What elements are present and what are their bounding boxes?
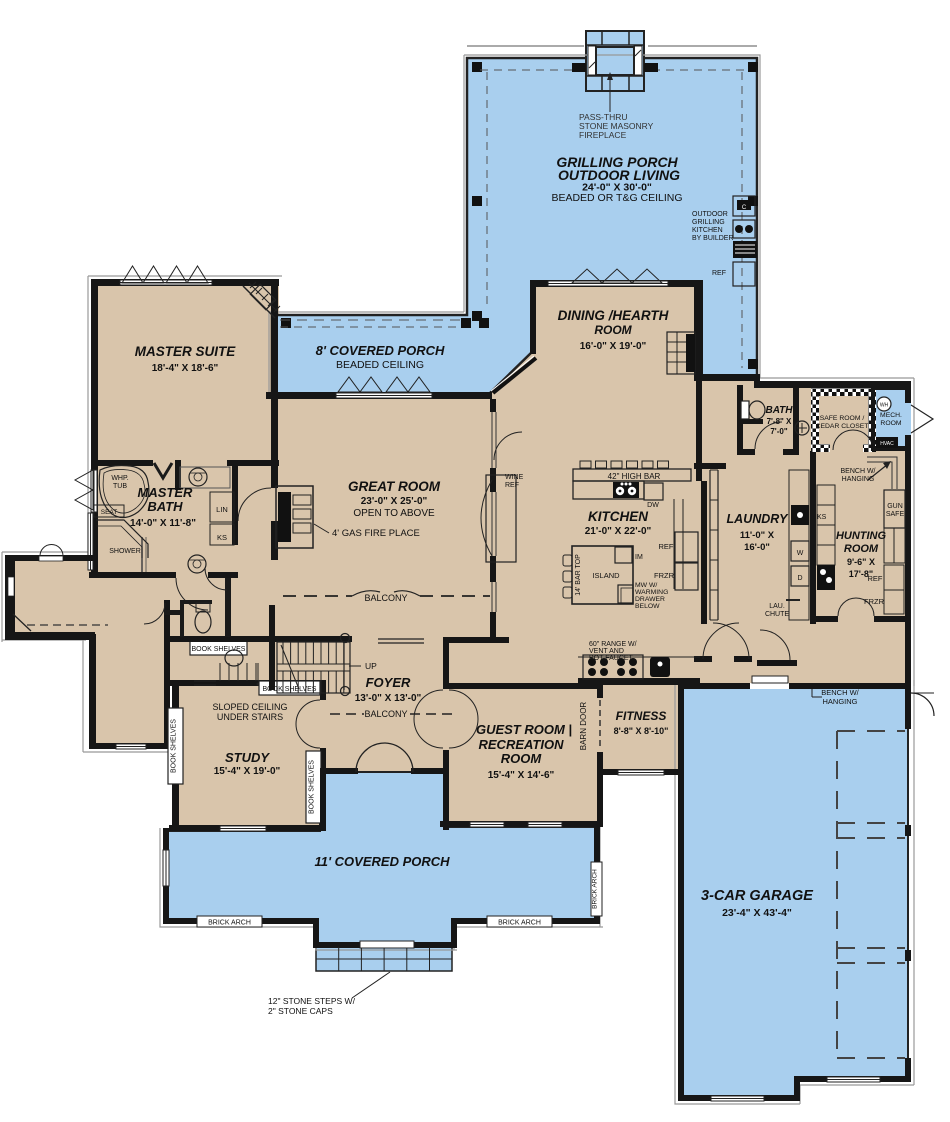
svg-text:STUDY: STUDY (225, 750, 270, 765)
svg-text:KS: KS (817, 514, 827, 521)
svg-text:WH: WH (880, 403, 889, 409)
svg-text:BEADED CEILING: BEADED CEILING (336, 359, 424, 371)
svg-text:ISLAND: ISLAND (592, 571, 620, 580)
svg-text:SEAT: SEAT (101, 509, 118, 516)
svg-text:BELOW: BELOW (635, 603, 660, 610)
svg-text:7'-8" X: 7'-8" X (767, 417, 792, 426)
svg-text:GUEST ROOM |: GUEST ROOM | (476, 722, 572, 737)
svg-text:BOOK SHELVES: BOOK SHELVES (192, 646, 246, 653)
svg-text:DW: DW (647, 502, 659, 509)
svg-text:TUB: TUB (113, 483, 127, 490)
svg-text:BOOK SHELVES: BOOK SHELVES (309, 760, 316, 814)
svg-text:LAU.: LAU. (769, 603, 785, 610)
svg-text:FRZR: FRZR (654, 571, 675, 580)
svg-text:12" STONE STEPS W/: 12" STONE STEPS W/ (268, 996, 356, 1006)
svg-text:8' COVERED PORCH: 8' COVERED PORCH (316, 343, 445, 358)
svg-text:FIREPLACE: FIREPLACE (579, 130, 627, 140)
svg-text:BARN DOOR: BARN DOOR (579, 702, 588, 751)
svg-text:3-CAR GARAGE: 3-CAR GARAGE (701, 888, 814, 904)
svg-text:HUNTING: HUNTING (836, 530, 887, 542)
svg-text:15'-4" X 19'-0": 15'-4" X 19'-0" (214, 766, 281, 777)
svg-text:16'-0": 16'-0" (744, 542, 770, 553)
svg-text:RECREATION: RECREATION (479, 737, 565, 752)
svg-text:VENT AND: VENT AND (589, 648, 624, 655)
svg-text:CEDAR CLOSET: CEDAR CLOSET (816, 423, 869, 430)
svg-text:UNDER STAIRS: UNDER STAIRS (217, 712, 283, 722)
svg-text:KS: KS (217, 533, 227, 542)
svg-text:HANGING: HANGING (842, 476, 875, 483)
svg-text:FRZR: FRZR (864, 597, 885, 606)
svg-text:WHP.: WHP. (111, 475, 128, 482)
svg-text:13'-0" X 13'-0": 13'-0" X 13'-0" (355, 693, 422, 704)
svg-text:DRAWER: DRAWER (635, 596, 665, 603)
svg-text:MECH.: MECH. (880, 412, 902, 419)
svg-text:GRILLING: GRILLING (692, 219, 725, 226)
svg-text:60" RANGE W/: 60" RANGE W/ (589, 641, 637, 648)
svg-text:7'-0": 7'-0" (770, 427, 787, 436)
svg-text:BENCH W/: BENCH W/ (841, 468, 876, 475)
svg-text:BALCONY: BALCONY (364, 709, 407, 719)
svg-text:ROOM: ROOM (594, 323, 632, 337)
svg-text:BATH: BATH (147, 499, 183, 514)
svg-text:14'-0" X 11'-8": 14'-0" X 11'-8" (130, 518, 196, 529)
svg-text:23'-0" X 25'-0": 23'-0" X 25'-0" (361, 496, 428, 507)
svg-text:23'-4" X 43'-4": 23'-4" X 43'-4" (722, 907, 792, 919)
svg-text:REF: REF (868, 574, 883, 583)
svg-text:2" STONE CAPS: 2" STONE CAPS (268, 1006, 333, 1016)
svg-text:SAFE ROOM /: SAFE ROOM / (820, 415, 865, 422)
svg-text:SLOPED CEILING: SLOPED CEILING (212, 702, 287, 712)
svg-text:REF: REF (505, 482, 519, 489)
svg-text:MASTER: MASTER (138, 485, 194, 500)
svg-text:9'-6" X: 9'-6" X (847, 557, 875, 567)
svg-text:D: D (797, 575, 802, 582)
svg-text:REF: REF (659, 542, 674, 551)
svg-text:MASTER SUITE: MASTER SUITE (135, 344, 237, 359)
svg-text:ROOM: ROOM (501, 751, 543, 766)
svg-text:BRICK ARCH: BRICK ARCH (592, 869, 599, 909)
svg-text:16'-0" X 19'-0": 16'-0" X 19'-0" (580, 341, 647, 352)
svg-text:OPEN TO ABOVE: OPEN TO ABOVE (353, 508, 435, 519)
svg-text:FITNESS: FITNESS (616, 709, 667, 723)
svg-text:BATH: BATH (765, 405, 793, 416)
svg-text:W: W (797, 550, 804, 557)
svg-text:42" HIGH BAR: 42" HIGH BAR (608, 472, 661, 481)
svg-text:OUTDOOR: OUTDOOR (692, 211, 728, 218)
svg-text:LIN: LIN (216, 505, 228, 514)
svg-text:REF: REF (712, 270, 726, 277)
svg-text:15'-4" X 14'-6": 15'-4" X 14'-6" (488, 770, 555, 781)
svg-text:WARMING: WARMING (635, 589, 668, 596)
svg-text:LAUNDRY: LAUNDRY (727, 512, 790, 526)
svg-text:11' COVERED PORCH: 11' COVERED PORCH (314, 854, 450, 869)
svg-text:UP: UP (365, 661, 377, 671)
svg-text:HVAC: HVAC (880, 441, 894, 447)
svg-text:HANGING: HANGING (822, 697, 857, 706)
svg-text:FOYER: FOYER (366, 675, 411, 690)
svg-text:BOOK SHELVES: BOOK SHELVES (171, 719, 178, 773)
svg-text:GUN: GUN (887, 503, 903, 510)
svg-text:21'-0" X 22'-0": 21'-0" X 22'-0" (585, 526, 652, 537)
svg-text:8'-8" X 8'-10": 8'-8" X 8'-10" (614, 726, 669, 736)
svg-text:POT FAUCET: POT FAUCET (589, 655, 634, 662)
svg-text:CHUTE: CHUTE (765, 611, 789, 618)
svg-text:GREAT ROOM: GREAT ROOM (348, 479, 441, 494)
svg-text:DINING /HEARTH: DINING /HEARTH (558, 308, 669, 323)
svg-text:4' GAS FIRE PLACE: 4' GAS FIRE PLACE (332, 528, 420, 539)
svg-text:KITCHEN: KITCHEN (588, 509, 648, 524)
svg-text:BEADED OR T&G CEILING: BEADED OR T&G CEILING (551, 192, 682, 204)
svg-text:IM: IM (635, 554, 643, 561)
svg-text:KITCHEN: KITCHEN (692, 227, 723, 234)
svg-text:BRICK ARCH: BRICK ARCH (208, 920, 251, 927)
svg-text:SAFE: SAFE (886, 511, 905, 518)
svg-text:ROOM: ROOM (880, 420, 901, 427)
svg-text:BENCH W/: BENCH W/ (821, 688, 859, 697)
svg-text:C: C (742, 205, 747, 211)
svg-text:SHOWER: SHOWER (109, 548, 141, 555)
svg-text:MW W/: MW W/ (635, 582, 657, 589)
svg-text:14' BAR TOP: 14' BAR TOP (575, 554, 582, 596)
svg-text:18'-4" X 18'-6": 18'-4" X 18'-6" (152, 363, 219, 374)
svg-text:BY BUILDER: BY BUILDER (692, 235, 734, 242)
svg-text:ROOM: ROOM (844, 543, 879, 555)
svg-text:11'-0" X: 11'-0" X (740, 530, 775, 541)
svg-text:WINE: WINE (505, 474, 524, 481)
svg-text:BRICK ARCH: BRICK ARCH (498, 920, 541, 927)
svg-text:BALCONY: BALCONY (364, 593, 407, 603)
